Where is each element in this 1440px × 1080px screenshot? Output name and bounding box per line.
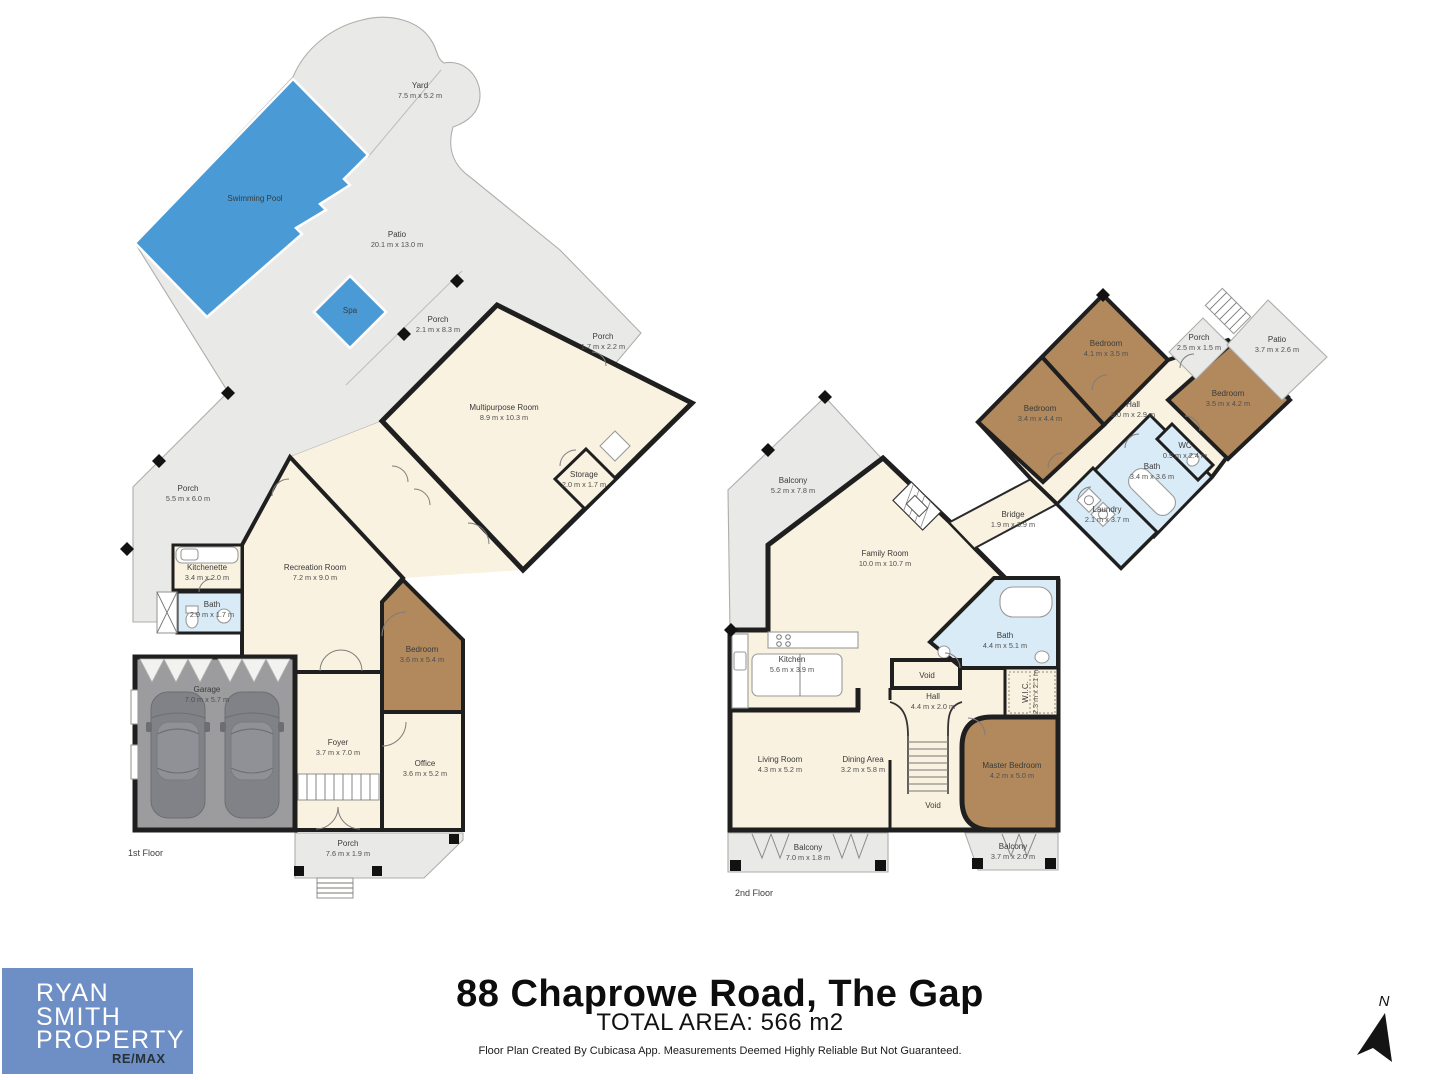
car <box>146 692 210 818</box>
room-label: Bath <box>997 631 1013 640</box>
room-label: Void <box>919 671 935 680</box>
room-label: Living Room <box>758 755 803 764</box>
room-dims: 2.1 m x 8.3 m <box>416 325 460 334</box>
toilet-2f <box>1035 651 1049 663</box>
room-dims: 5.5 m x 6.0 m <box>166 494 210 503</box>
title-block: 88 Chaprowe Road, The Gap TOTAL AREA: 56… <box>456 973 984 1057</box>
garage-window <box>131 690 138 724</box>
first-floor-plan: Yard 7.5 m x 5.2 m Swimming Pool Patio 2… <box>120 17 692 898</box>
room-label: Office <box>415 759 436 768</box>
room-dims: 3.6 m x 5.4 m <box>400 655 444 664</box>
room-dims: 3.4 m x 3.6 m <box>1130 472 1174 481</box>
sink-2f <box>938 646 950 658</box>
room-label: Bridge <box>1001 510 1025 519</box>
room-dims: 2.9 m x 1.7 m <box>190 610 234 619</box>
room-dims: 3.4 m x 2.0 m <box>185 573 229 582</box>
room-dims: 3.6 m x 5.2 m <box>403 769 447 778</box>
room-dims: 3.7 m x 2.0 m <box>991 852 1035 861</box>
room-label: Void <box>925 801 941 810</box>
kitchenette-sink <box>181 549 198 560</box>
room-dims: 4.4 m x 5.1 m <box>983 641 1027 650</box>
room-label: Yard <box>412 81 428 90</box>
room-dims: 3.2 m x 5.8 m <box>841 765 885 774</box>
room-label: Foyer <box>328 738 349 747</box>
room-dims: 7.0 m x 1.8 m <box>786 853 830 862</box>
car <box>220 692 284 818</box>
second-floor-plan: Balcony 5.2 m x 7.8 m Family Room 10.0 m… <box>724 288 1327 898</box>
room-dims: 3.7 m x 2.6 m <box>1255 345 1299 354</box>
room-label: WC <box>1178 441 1192 450</box>
room-label: Porch <box>428 315 449 324</box>
room-dims: 5.6 m x 3.9 m <box>770 665 814 674</box>
room-dims: 4.4 m x 2.0 m <box>911 702 955 711</box>
north-arrow-shape <box>1357 1013 1392 1062</box>
room-label: Family Room <box>861 549 908 558</box>
room-dims: 0.9 m x 2.4 m <box>1163 451 1207 460</box>
room-label: Master Bedroom <box>982 761 1041 770</box>
room-dims: 8.0 m x 2.9 m <box>1111 410 1155 419</box>
room-dims: 7.2 m x 9.0 m <box>293 573 337 582</box>
room-dims: 7.0 m x 5.7 m <box>185 695 229 704</box>
floorplan-page: Yard 7.5 m x 5.2 m Swimming Pool Patio 2… <box>0 0 1440 1080</box>
kitchen-counter <box>732 634 748 708</box>
floorplan-canvas: Yard 7.5 m x 5.2 m Swimming Pool Patio 2… <box>0 0 1440 1080</box>
room-label: Bath <box>1144 462 1160 471</box>
room-label: Bath <box>204 600 220 609</box>
garage-window <box>131 745 138 779</box>
room-dims: 10.0 m x 10.7 m <box>859 559 911 568</box>
room-dims: 3.4 m x 4.4 m <box>1018 414 1062 423</box>
balcony-post <box>1045 858 1056 869</box>
room-label: Bedroom <box>406 645 439 654</box>
foyer-stairs <box>298 774 379 800</box>
logo-brand: RE/MAX <box>112 1051 166 1066</box>
room-label: Storage <box>570 470 599 479</box>
room-label: Bedroom <box>1212 389 1245 398</box>
room-label: Porch <box>338 839 359 848</box>
room-label: Balcony <box>999 842 1027 851</box>
room-dims: 2.1 m x 3.7 m <box>1085 515 1129 524</box>
north-label: N <box>1379 993 1390 1010</box>
room-label: Spa <box>343 306 358 315</box>
balcony-post <box>730 860 741 871</box>
room-label: W.I.C. <box>1021 681 1030 703</box>
room-dims: 2.5 m x 1.5 m <box>1177 343 1221 352</box>
room-label: Patio <box>388 230 407 239</box>
room-dims: 2.3 m x 2.1 m <box>1031 670 1040 714</box>
room-label: Dining Area <box>842 755 884 764</box>
room-label: Recreation Room <box>284 563 347 572</box>
room-dims: 7.5 m x 5.2 m <box>398 91 442 100</box>
room-label: Porch <box>593 332 614 341</box>
room-dims: 1.9 m x 3.9 m <box>991 520 1035 529</box>
total-area: TOTAL AREA: 566 m2 <box>596 1009 843 1036</box>
north-arrow-icon: N <box>1357 993 1392 1062</box>
room-dims: 8.9 m x 10.3 m <box>480 413 528 422</box>
room-label: Balcony <box>794 843 822 852</box>
room-label: Kitchenette <box>187 563 228 572</box>
balcony-post <box>972 858 983 869</box>
room-dims: 1.7 m x 2.2 m <box>581 342 625 351</box>
room-label: Garage <box>194 685 221 694</box>
wardrobe-1f <box>157 592 177 633</box>
floor-label-2: 2nd Floor <box>735 888 773 898</box>
room-dims: 7.6 m x 1.9 m <box>326 849 370 858</box>
room-label: Hall <box>1126 400 1140 409</box>
room-label: Swimming Pool <box>227 194 282 203</box>
room-label: Multipurpose Room <box>469 403 539 412</box>
room-label: Laundry <box>1093 505 1122 514</box>
room-label: Bedroom <box>1090 339 1123 348</box>
room-label: Porch <box>1189 333 1210 342</box>
porch-steps <box>317 878 353 898</box>
corner-post <box>120 542 134 556</box>
bathtub-2f <box>1000 587 1052 617</box>
porch-post <box>372 866 382 876</box>
room-label: Hall <box>926 692 940 701</box>
porch-post <box>294 866 304 876</box>
floor-label-1: 1st Floor <box>128 848 163 858</box>
porch-post <box>449 834 459 844</box>
room-label: Patio <box>1268 335 1287 344</box>
room-label: Porch <box>178 484 199 493</box>
room-dims: 4.3 m x 5.2 m <box>758 765 802 774</box>
room-dims: 3.5 m x 4.2 m <box>1206 399 1250 408</box>
room-label: Balcony <box>779 476 807 485</box>
balcony-post <box>875 860 886 871</box>
room-dims: 20.1 m x 13.0 m <box>371 240 423 249</box>
room-dims: 4.2 m x 5.0 m <box>990 771 1034 780</box>
kitchen-counter <box>768 632 858 648</box>
room-dims: 4.1 m x 3.5 m <box>1084 349 1128 358</box>
agency-logo: RYAN SMITH PROPERTY RE/MAX <box>2 968 193 1074</box>
logo-line: PROPERTY <box>36 1026 185 1054</box>
room-dims: 5.2 m x 7.8 m <box>771 486 815 495</box>
kitchen-sink <box>734 652 746 670</box>
disclaimer: Floor Plan Created By Cubicasa App. Meas… <box>478 1045 961 1057</box>
room-label: Bedroom <box>1024 404 1057 413</box>
room-dims: 2.0 m x 1.7 m <box>562 480 606 489</box>
room-dims: 3.7 m x 7.0 m <box>316 748 360 757</box>
room-label: Kitchen <box>779 655 806 664</box>
